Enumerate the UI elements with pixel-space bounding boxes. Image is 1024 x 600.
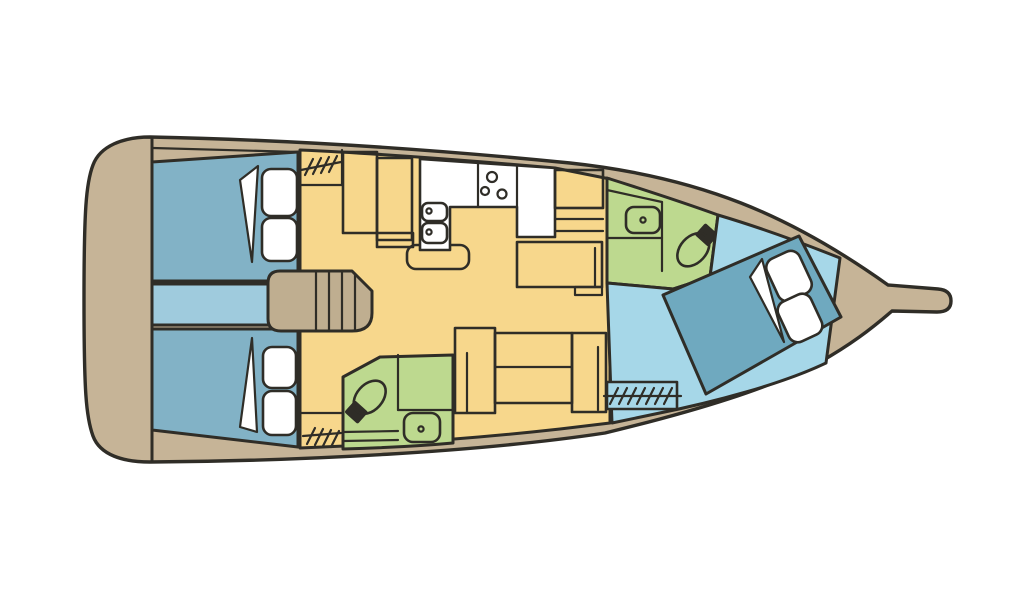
- shower-grate: [343, 431, 398, 432]
- pillow: [262, 218, 297, 261]
- pillow: [263, 391, 296, 435]
- aft-cabin-upper: [152, 152, 298, 281]
- aft-cabin-lower: [152, 329, 298, 447]
- companionway-steps: [268, 271, 372, 331]
- boat-layout-svg: [0, 0, 1024, 600]
- head-lower: [341, 355, 453, 449]
- pillow: [263, 347, 296, 388]
- yacht-layout-diagram: [0, 0, 1024, 600]
- pillow: [262, 169, 297, 216]
- entry-hatch: [604, 382, 681, 409]
- shower-grate: [343, 440, 398, 441]
